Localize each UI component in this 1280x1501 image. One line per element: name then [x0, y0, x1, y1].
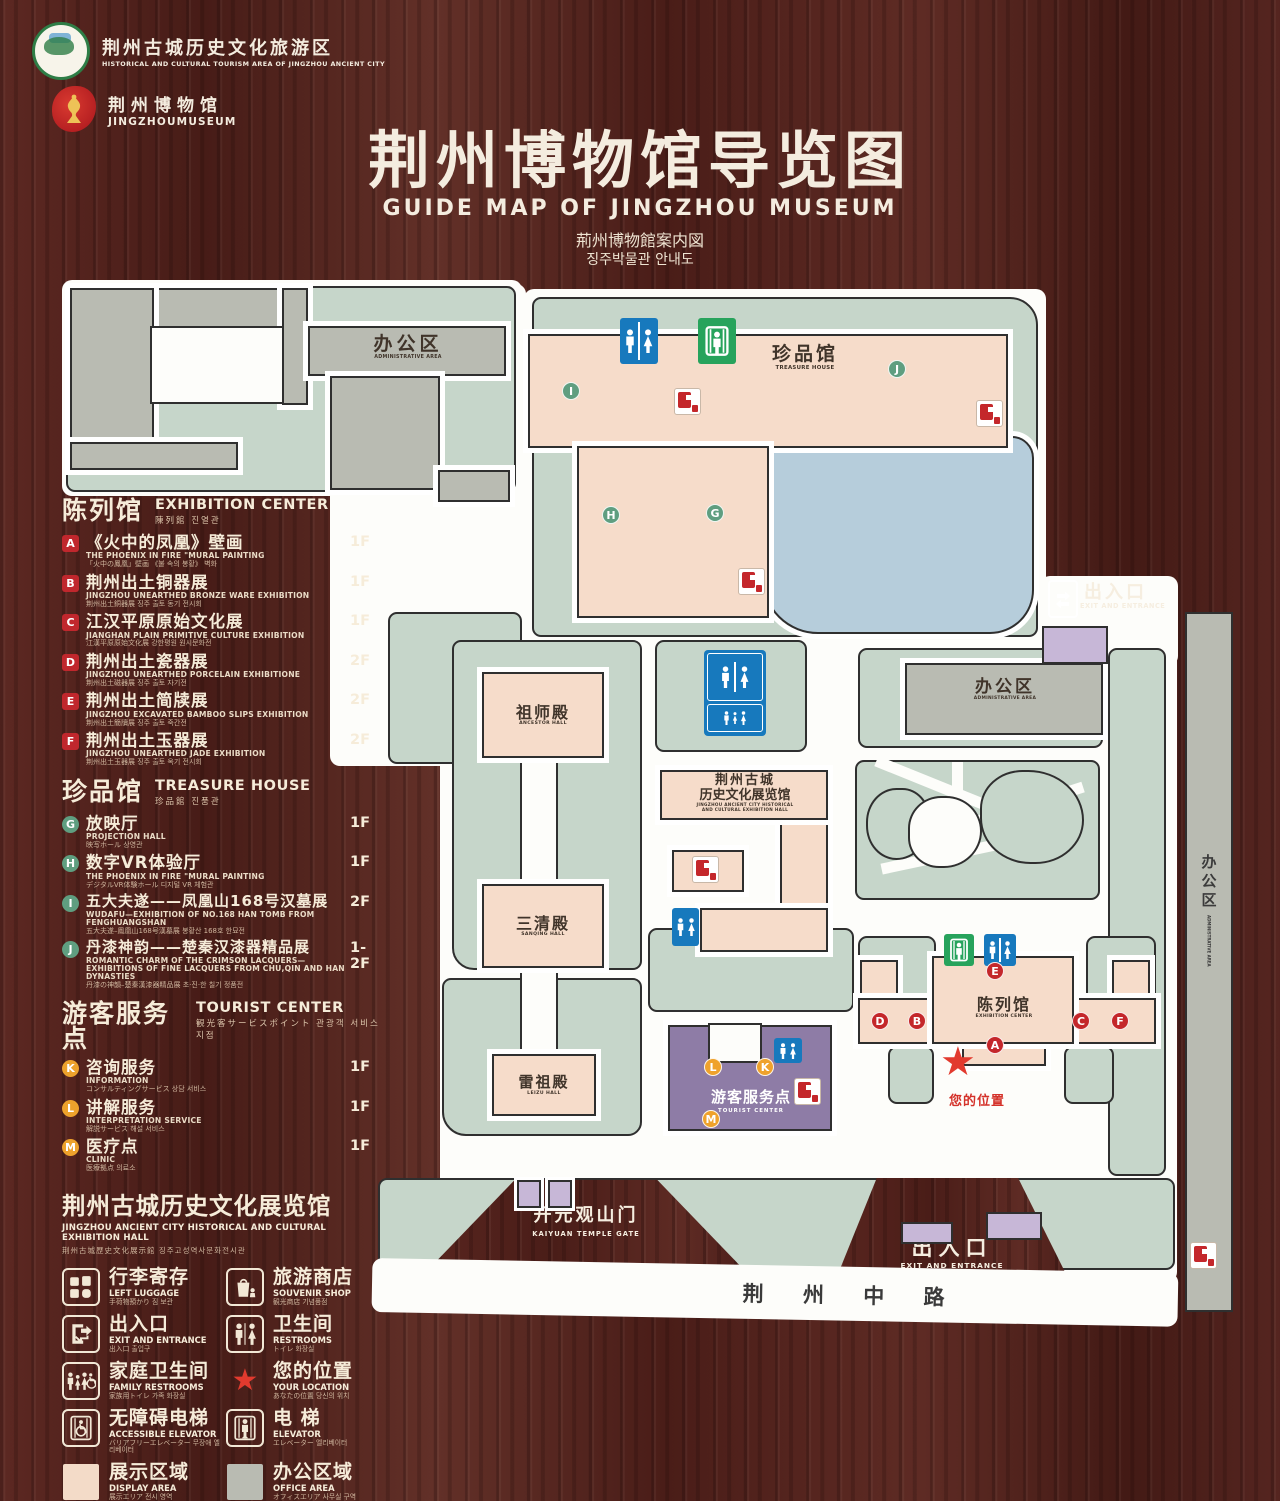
- admin-strip-label: 办公区: [1199, 854, 1220, 911]
- badge-A: A: [62, 535, 79, 552]
- floor: 2F: [350, 732, 384, 748]
- map-marker-E: E: [986, 962, 1004, 980]
- your-location-label: 您的位置: [922, 1090, 1032, 1109]
- kaiyuan-gate-label-en: KAIYUAN TEMPLE GATE: [424, 1231, 748, 1239]
- legend-item-B: B 荆州出土铜器展JINGZHOU UNEARTHED BRONZE WARE …: [62, 574, 384, 609]
- your-location-icon: ★: [226, 1362, 264, 1400]
- map-marker-H: H: [602, 506, 620, 524]
- legend-item-H: H 数字VR体验厅THE PHOENIX IN FIRE "MURAL PAIN…: [62, 854, 384, 889]
- ancestor-hall: 祖师殿ANCESTOR HALL: [482, 672, 604, 758]
- badge-J: J: [62, 941, 79, 958]
- legend-office-area: 办公区域OFFICE AREAオフィスエリア 사무실 구역: [226, 1463, 384, 1501]
- section-title: 珍品馆: [62, 779, 143, 804]
- tourism-area-logo-title: 荆州古城历史文化旅游区: [102, 34, 385, 60]
- legend-exit-entrance: 出入口EXIT AND ENTRANCE出入口 출입구: [62, 1315, 222, 1353]
- central-restroom-sign: [704, 650, 766, 736]
- sanqing-hall: 三清殿SANQING HALL: [482, 884, 604, 968]
- badge-H: H: [62, 855, 79, 872]
- legend-section-tourist-center: 游客服务点 TOURIST CENTER観光客サービスポイント 관광객 서비스 …: [62, 1001, 384, 1051]
- page-title: 荆州博物馆导览图: [240, 110, 1040, 200]
- floor: 1F: [350, 574, 384, 590]
- stairs-icon: [1190, 1242, 1217, 1269]
- restroom-sign: [620, 318, 658, 364]
- legend-item-I: I 五大夫遂——凤凰山168号汉墓展WUDAFU—EXHIBITION OF N…: [62, 894, 384, 935]
- badge-I: I: [62, 895, 79, 912]
- map-marker-F: F: [1111, 1012, 1129, 1030]
- legend-item-E: E 荆州出土简牍展JINGZHOU EXCAVATED BAMBOO SLIPS…: [62, 692, 384, 727]
- exit-east-icon: [1048, 580, 1078, 618]
- tourism-area-logo-subtitle: HISTORICAL AND CULTURAL TOURISM AREA OF …: [102, 60, 385, 68]
- badge-F: F: [62, 733, 79, 750]
- tourist-center-notch: [708, 1023, 762, 1063]
- legend-item-F: F 荆州出土玉器展JINGZHOU UNEARTHED JADE EXHIBIT…: [62, 732, 384, 767]
- legend-elevator: 电 梯ELEVATORエレベーター 엘리베이터: [226, 1409, 384, 1454]
- legend-family-restrooms: 家庭卫生间FAMILY RESTROOMS家族用トイレ 가족 화장실: [62, 1362, 222, 1400]
- floor: 1F: [350, 1138, 384, 1154]
- legend-icon-grid: 行李寄存LEFT LUGGAGE手荷物預かり 짐 보관 旅游商店SOUVENIR…: [62, 1268, 384, 1501]
- admin-building-nw-wing: [330, 376, 440, 490]
- legend-restrooms: 卫生间RESTROOMSトイレ 화장실: [226, 1315, 384, 1353]
- leizu-hall: 雷祖殿LEIZU HALL: [492, 1054, 596, 1116]
- floor: 1-2F: [350, 940, 384, 972]
- left-luggage-icon: [62, 1268, 100, 1306]
- floor: 2F: [350, 692, 384, 708]
- page-subtitle-ja: 荊州博物館案内図: [240, 227, 1040, 251]
- legend-section-exhibition-center: 陈列馆 EXHIBITION CENTER陳列館 진열관: [62, 498, 384, 526]
- treasure-house-building: [528, 334, 1008, 448]
- floor: 1F: [350, 854, 384, 870]
- stairs-icon: [674, 388, 701, 415]
- stairs-icon: [692, 856, 719, 883]
- legend-item-K: K 咨询服务INFORMATIONコンサルティングサービス 상담 서비스 1F: [62, 1059, 384, 1094]
- map-marker-B: B: [908, 1012, 926, 1030]
- floor: 2F: [350, 894, 384, 910]
- legend-accessible-elevator: 无障碍电梯ACCESSIBLE ELEVATORバリアフリーエレベーター 무장애…: [62, 1409, 222, 1454]
- map-marker-J: J: [888, 360, 906, 378]
- map-marker-G: G: [706, 504, 724, 522]
- restroom-sign: [672, 908, 699, 946]
- legend-hall-title: 荆州古城历史文化展览馆 JINGZHOU ANCIENT CITY HISTOR…: [62, 1187, 384, 1256]
- your-location-star: ★: [940, 1044, 976, 1080]
- souvenir-shop-icon: [226, 1268, 264, 1306]
- floor: 1F: [350, 534, 384, 550]
- east-gate-building: [1042, 626, 1108, 664]
- map-marker-A: A: [986, 1036, 1004, 1054]
- legend-your-location: ★ 您的位置YOUR LOCATIONあなたの位置 당신의 위치: [226, 1362, 384, 1400]
- legend-item-D: D 荆州出土瓷器展JINGZHOU UNEARTHED PORCELAIN EX…: [62, 653, 384, 688]
- admin-building-nw: [70, 442, 238, 470]
- badge-K: K: [62, 1060, 79, 1077]
- admin-building-nw-bar: [308, 326, 506, 376]
- badge-E: E: [62, 693, 79, 710]
- accessible-elevator-icon: [62, 1409, 100, 1447]
- map-marker-C: C: [1072, 1012, 1090, 1030]
- admin-building-nw-tab: [438, 470, 510, 502]
- page-subtitle-ko: 징주박물관 안내도: [240, 249, 1040, 269]
- legend-item-J: J 丹漆神韵——楚秦汉漆器精品展ROMANTIC CHARM OF THE CR…: [62, 940, 384, 989]
- tourism-area-logo: 荆州古城历史文化旅游区 HISTORICAL AND CULTURAL TOUR…: [32, 22, 385, 80]
- badge-G: G: [62, 816, 79, 833]
- family-restrooms-icon: [62, 1362, 100, 1400]
- legend-item-C: C 江汉平原原始文化展JIANGHAN PLAIN PRIMITIVE CULT…: [62, 613, 384, 648]
- lawn-exh-corner-se: [1064, 1046, 1114, 1104]
- stairs-icon: [976, 400, 1003, 427]
- floor: 1F: [350, 815, 384, 831]
- section-title: 游客服务点: [62, 1001, 184, 1051]
- exit-east-label-en: EXIT AND ENTRANCE: [1080, 602, 1165, 610]
- legend-souvenir-shop: 旅游商店SOUVENIR SHOP観光商店 기념품점: [226, 1268, 384, 1306]
- gate-pillar: [548, 1180, 572, 1208]
- legend-section-treasure-house: 珍品馆 TREASURE HOUSE珍品館 진품관: [62, 779, 384, 807]
- office-area-swatch: [226, 1463, 264, 1501]
- exit-east-label: 出入口: [1084, 578, 1147, 604]
- history-hall-south-wing: [700, 908, 828, 952]
- admin-strip-east: 办公区 ADMINISTRATIVE AREA: [1185, 612, 1233, 1312]
- elevator-sign: [944, 934, 974, 966]
- elevator-icon: [226, 1409, 264, 1447]
- display-area-swatch: [62, 1463, 100, 1501]
- stairs-icon: [738, 568, 765, 595]
- restroom-sign: [774, 1038, 802, 1063]
- admin-strip-label-en: ADMINISTRATIVE AREA: [1207, 915, 1212, 967]
- admin-building-east: [905, 663, 1103, 735]
- stairs-icon: [794, 1078, 821, 1105]
- museum-logo-title: 荆州博物馆: [108, 91, 237, 116]
- tourism-area-logo-icon: [32, 22, 90, 80]
- road-label: 荆 州 中 路: [742, 1278, 960, 1312]
- badge-D: D: [62, 654, 79, 671]
- map-marker-L: L: [704, 1058, 722, 1076]
- legend-item-G: G 放映厅PROJECTION HALL映写ホール 상영관 1F: [62, 815, 384, 850]
- page-subtitle-en: GUIDE MAP OF JINGZHOU MUSEUM: [240, 196, 1040, 221]
- legend-panel: 陈列馆 EXHIBITION CENTER陳列館 진열관 A 《火中的凤凰》壁画…: [62, 498, 384, 1501]
- gate-pillar: [517, 1180, 541, 1208]
- exit-entrance-icon: [62, 1315, 100, 1353]
- map-marker-K: K: [756, 1058, 774, 1076]
- lawn-east-strip: [1108, 648, 1166, 1176]
- badge-L: L: [62, 1100, 79, 1117]
- museum-logo-subtitle: JINGZHOUMUSEUM: [108, 116, 237, 128]
- legend-item-L: L 讲解服务INTERPRETATION SERVICE解説サービス 해설 서비…: [62, 1099, 384, 1134]
- elevator-sign: [698, 318, 736, 364]
- floor: 2F: [350, 653, 384, 669]
- admin-building-nw: [282, 288, 308, 405]
- legend-item-M: M 医疗点CLINIC医療拠点 의료소 1F: [62, 1138, 384, 1173]
- floor: 1F: [350, 1059, 384, 1075]
- badge-B: B: [62, 575, 79, 592]
- family-restroom-sign: [707, 704, 763, 732]
- floor: 1F: [350, 613, 384, 629]
- map-marker-I: I: [562, 382, 580, 400]
- section-title: 陈列馆: [62, 498, 143, 523]
- badge-M: M: [62, 1139, 79, 1156]
- south-exit-building: [986, 1212, 1042, 1240]
- legend-left-luggage: 行李寄存LEFT LUGGAGE手荷物預かり 짐 보관: [62, 1268, 222, 1306]
- badge-C: C: [62, 614, 79, 631]
- museum-guide-map-poster: { "header": { "logo1": {"cn": "荆州古城历史文化旅…: [0, 0, 1280, 1451]
- floor: 1F: [350, 1099, 384, 1115]
- legend-display-area: 展示区域DISPLAY AREA展示エリア 전시 영역: [62, 1463, 222, 1501]
- admin-courtyard: [150, 326, 284, 404]
- museum-logo: 荆州博物馆 JINGZHOUMUSEUM: [52, 86, 237, 132]
- south-exit-building: [901, 1222, 953, 1244]
- legend-item-A: A 《火中的凤凰》壁画THE PHOENIX IN FIRE "MURAL PA…: [62, 534, 384, 569]
- restrooms-icon: [226, 1315, 264, 1353]
- restroom-sign: [984, 934, 1016, 966]
- museum-logo-icon: [52, 86, 96, 132]
- pond: [762, 436, 1034, 634]
- history-hall-north-wing: [660, 770, 828, 820]
- map-marker-D: D: [871, 1012, 889, 1030]
